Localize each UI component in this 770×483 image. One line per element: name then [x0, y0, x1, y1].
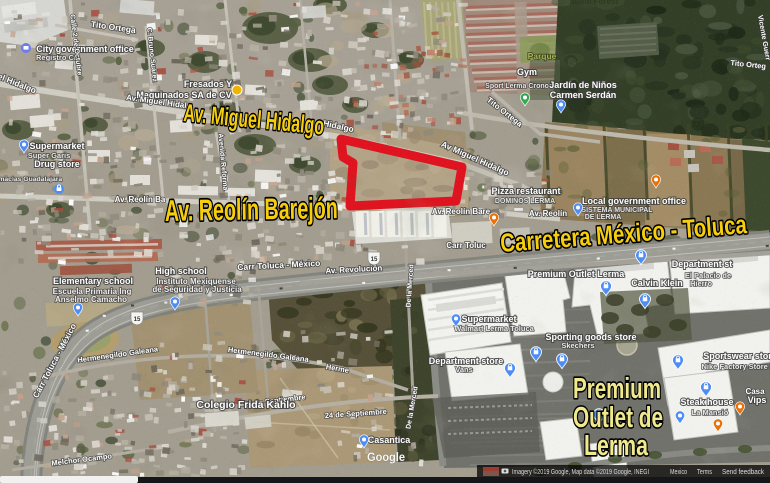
svg-text:Send feedback: Send feedback	[722, 469, 764, 476]
svg-text:Farmacias Guadalajara: Farmacias Guadalajara	[0, 176, 62, 183]
svg-text:Hierro: Hierro	[690, 279, 713, 288]
svg-text:Elementary school: Elementary school	[53, 276, 133, 286]
svg-text:Sport Lerma Cronos: Sport Lerma Cronos	[485, 83, 553, 90]
svg-text:Parque: Parque	[528, 51, 557, 61]
svg-text:Walmart Lerma Toluca: Walmart Lerma Toluca	[454, 324, 534, 333]
svg-text:Carr Toluc: Carr Toluc	[446, 241, 486, 250]
svg-text:Local government office: Local government office	[582, 196, 686, 206]
svg-text:Fresados Y: Fresados Y	[184, 79, 232, 89]
svg-text:Mexico: Mexico	[670, 469, 687, 476]
svg-text:Supermarket: Supermarket	[461, 314, 516, 324]
svg-text:Carmen Serdán: Carmen Serdán	[550, 90, 617, 100]
svg-text:Calvin Klein: Calvin Klein	[631, 278, 683, 288]
svg-text:High school: High school	[155, 266, 207, 276]
svg-text:Google: Google	[367, 450, 405, 464]
svg-text:Terms: Terms	[697, 469, 712, 476]
svg-text:Premium: Premium	[573, 373, 661, 405]
svg-text:Av. Reolín: Av. Reolín	[529, 209, 567, 218]
svg-text:SISTEMA MUNICIPAL: SISTEMA MUNICIPAL	[581, 207, 653, 214]
svg-text:Vips: Vips	[748, 395, 767, 405]
svg-text:Casantica: Casantica	[368, 435, 412, 445]
svg-text:Av. Reolín Bare: Av. Reolín Bare	[432, 207, 491, 216]
svg-text:atural Forest: atural Forest	[570, 0, 619, 6]
svg-text:15: 15	[134, 317, 141, 323]
svg-text:Sportswear store: Sportswear store	[703, 351, 770, 361]
svg-text:Nike Factory Store L: Nike Factory Store L	[702, 362, 770, 371]
svg-text:Av. Reolín Ba: Av. Reolín Ba	[115, 195, 166, 204]
svg-text:Vans: Vans	[455, 365, 473, 374]
svg-text:Department st: Department st	[672, 259, 733, 269]
svg-text:Drug store: Drug store	[34, 159, 80, 169]
svg-text:Gym: Gym	[517, 67, 537, 77]
svg-text:Colegio Frida Kahlo: Colegio Frida Kahlo	[196, 399, 295, 411]
svg-text:Pizza restaurant: Pizza restaurant	[491, 186, 560, 196]
svg-text:Premium Outlet Lerma: Premium Outlet Lerma	[528, 269, 626, 279]
svg-text:DOMINOS LERMA: DOMINOS LERMA	[495, 198, 555, 205]
svg-text:Skechers: Skechers	[561, 341, 594, 350]
svg-text:Anselmo Camacho: Anselmo Camacho	[55, 295, 127, 304]
svg-text:La Mansió: La Mansió	[692, 408, 729, 417]
svg-text:Supermarket: Supermarket	[29, 141, 84, 151]
svg-text:Steak house: Steak house	[680, 397, 733, 407]
svg-text:de Seguridad y Justicia: de Seguridad y Justicia	[152, 285, 242, 294]
svg-text:Casa: Casa	[745, 387, 765, 396]
svg-text:Lerma: Lerma	[584, 430, 649, 462]
svg-text:Imagery ©2019 Google, Map data: Imagery ©2019 Google, Map data ©2019 Goo…	[512, 468, 649, 476]
svg-text:15: 15	[371, 257, 378, 263]
svg-text:Av. Reolín Barejón: Av. Reolín Barejón	[165, 192, 339, 228]
svg-text:Registro Ci: Registro Ci	[36, 53, 76, 62]
svg-text:Jardín de Niños: Jardín de Niños	[549, 80, 617, 90]
